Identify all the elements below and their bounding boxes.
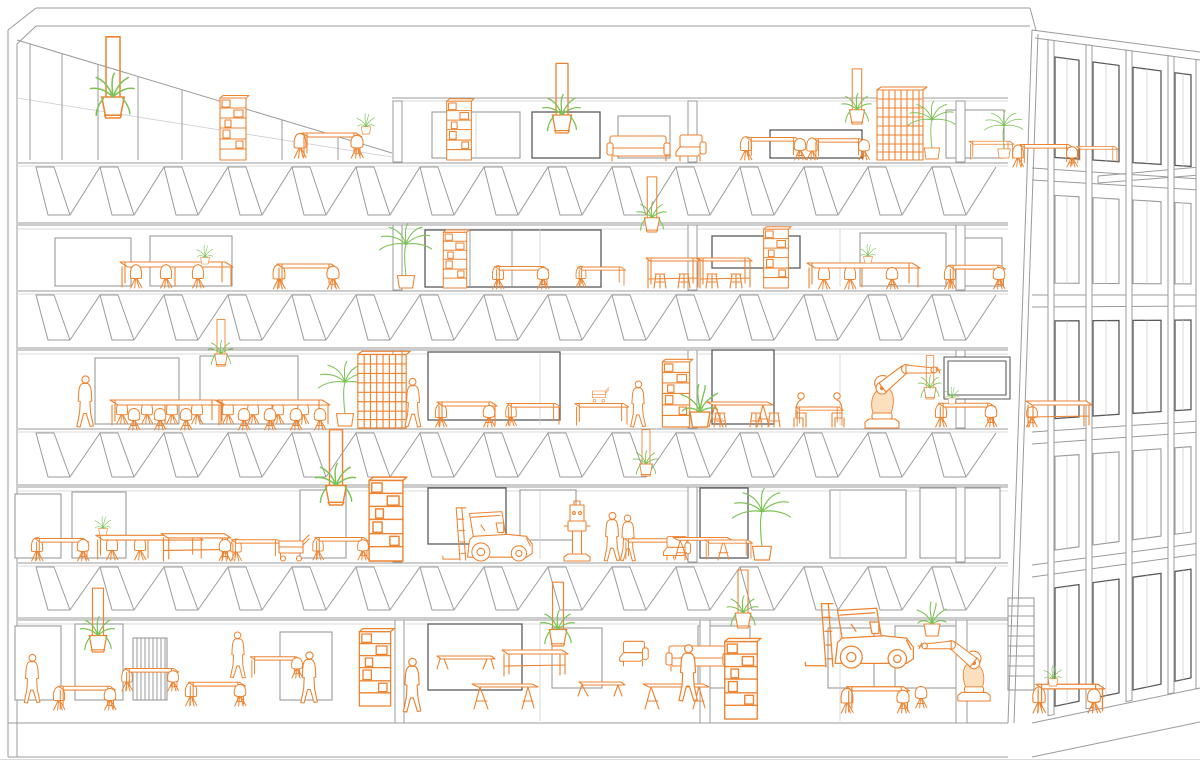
chair bbox=[915, 686, 927, 708]
shelf-unit bbox=[447, 99, 475, 160]
chair bbox=[351, 135, 363, 158]
palm-plant bbox=[379, 223, 431, 288]
hanging-planter bbox=[918, 356, 941, 400]
section-svg: Perspective building section: five floor… bbox=[0, 0, 1200, 761]
hanging-planter bbox=[637, 177, 666, 232]
chair bbox=[128, 408, 140, 430]
lattice-screen bbox=[877, 87, 927, 160]
chair bbox=[219, 539, 231, 561]
chair bbox=[104, 688, 116, 710]
person bbox=[604, 512, 620, 561]
person bbox=[230, 632, 245, 678]
hanging-planter bbox=[842, 69, 871, 124]
shelf-unit bbox=[369, 477, 407, 561]
right-facade bbox=[1008, 30, 1200, 757]
stool bbox=[654, 274, 666, 288]
building-section-drawing: Perspective building section: five floor… bbox=[0, 0, 1200, 761]
stool bbox=[730, 274, 742, 288]
chair-back bbox=[844, 266, 855, 289]
chair bbox=[327, 266, 339, 289]
coffee-table bbox=[578, 682, 625, 696]
chair bbox=[897, 690, 909, 713]
person bbox=[631, 381, 646, 427]
building-structure bbox=[0, 8, 1200, 760]
chair-back bbox=[130, 265, 141, 288]
chair bbox=[290, 408, 302, 430]
shelf-unit bbox=[443, 230, 469, 288]
shelf-unit bbox=[220, 96, 249, 161]
shelf-unit bbox=[725, 638, 761, 719]
chair-back bbox=[818, 266, 829, 289]
chair bbox=[1088, 689, 1101, 713]
ground-slab bbox=[0, 723, 1200, 760]
whiteboard bbox=[944, 357, 1010, 399]
shelf-unit bbox=[662, 359, 692, 427]
armchair bbox=[620, 641, 649, 666]
person bbox=[77, 376, 94, 427]
facade-ledge bbox=[1098, 167, 1200, 183]
person bbox=[620, 515, 635, 561]
shelf-unit bbox=[764, 227, 792, 288]
chair bbox=[168, 671, 179, 691]
trestle-table bbox=[643, 684, 709, 709]
person bbox=[405, 378, 421, 427]
table bbox=[575, 404, 629, 426]
chair-back bbox=[435, 404, 446, 427]
lattice-screen bbox=[358, 351, 411, 428]
chair bbox=[234, 684, 246, 706]
chair bbox=[358, 540, 369, 560]
chair bbox=[985, 405, 997, 427]
person bbox=[403, 658, 420, 712]
roof-parapet bbox=[8, 8, 1036, 44]
cart bbox=[592, 388, 609, 402]
hanging-planter bbox=[91, 37, 134, 118]
chair bbox=[264, 408, 276, 430]
chair bbox=[483, 405, 495, 427]
chair bbox=[859, 140, 870, 160]
chair bbox=[154, 408, 166, 430]
stool bbox=[706, 274, 718, 288]
chair bbox=[180, 408, 192, 430]
shelf-unit bbox=[359, 629, 394, 706]
chair bbox=[314, 408, 326, 430]
chair-back bbox=[1033, 687, 1046, 713]
potted-plant bbox=[357, 114, 374, 134]
chair bbox=[238, 408, 250, 430]
